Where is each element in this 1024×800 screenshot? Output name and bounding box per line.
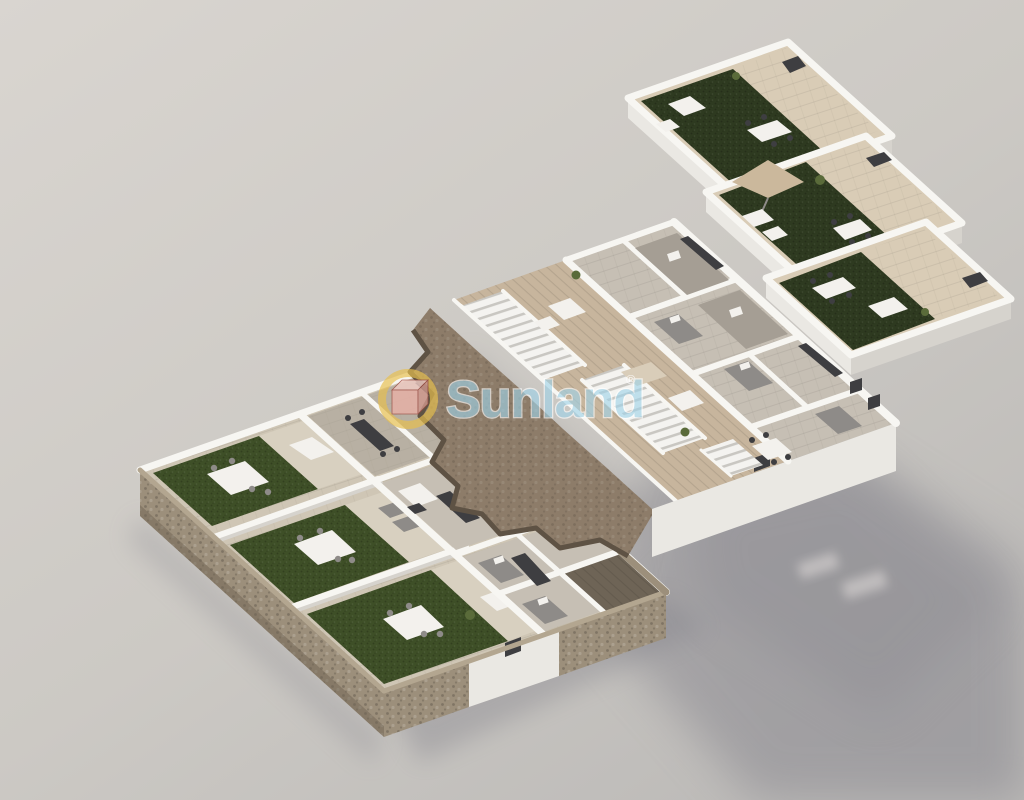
potted-plant	[681, 428, 690, 437]
sunland-watermark: Sunland ®	[382, 371, 644, 429]
registered-trademark-symbol: ®	[626, 372, 636, 387]
cube-front-face	[392, 390, 418, 414]
render-canvas: Sunland ®	[0, 0, 1024, 800]
watermark-brand-text: Sunland	[446, 371, 644, 429]
potted-plant	[921, 308, 929, 316]
potted-plant	[465, 610, 475, 620]
palm-plant	[815, 175, 825, 185]
floorplan-3d-render: Sunland ®	[0, 0, 1024, 800]
potted-plant	[572, 271, 581, 280]
sunland-logo-cube-icon	[392, 380, 428, 414]
potted-plant	[732, 72, 740, 80]
